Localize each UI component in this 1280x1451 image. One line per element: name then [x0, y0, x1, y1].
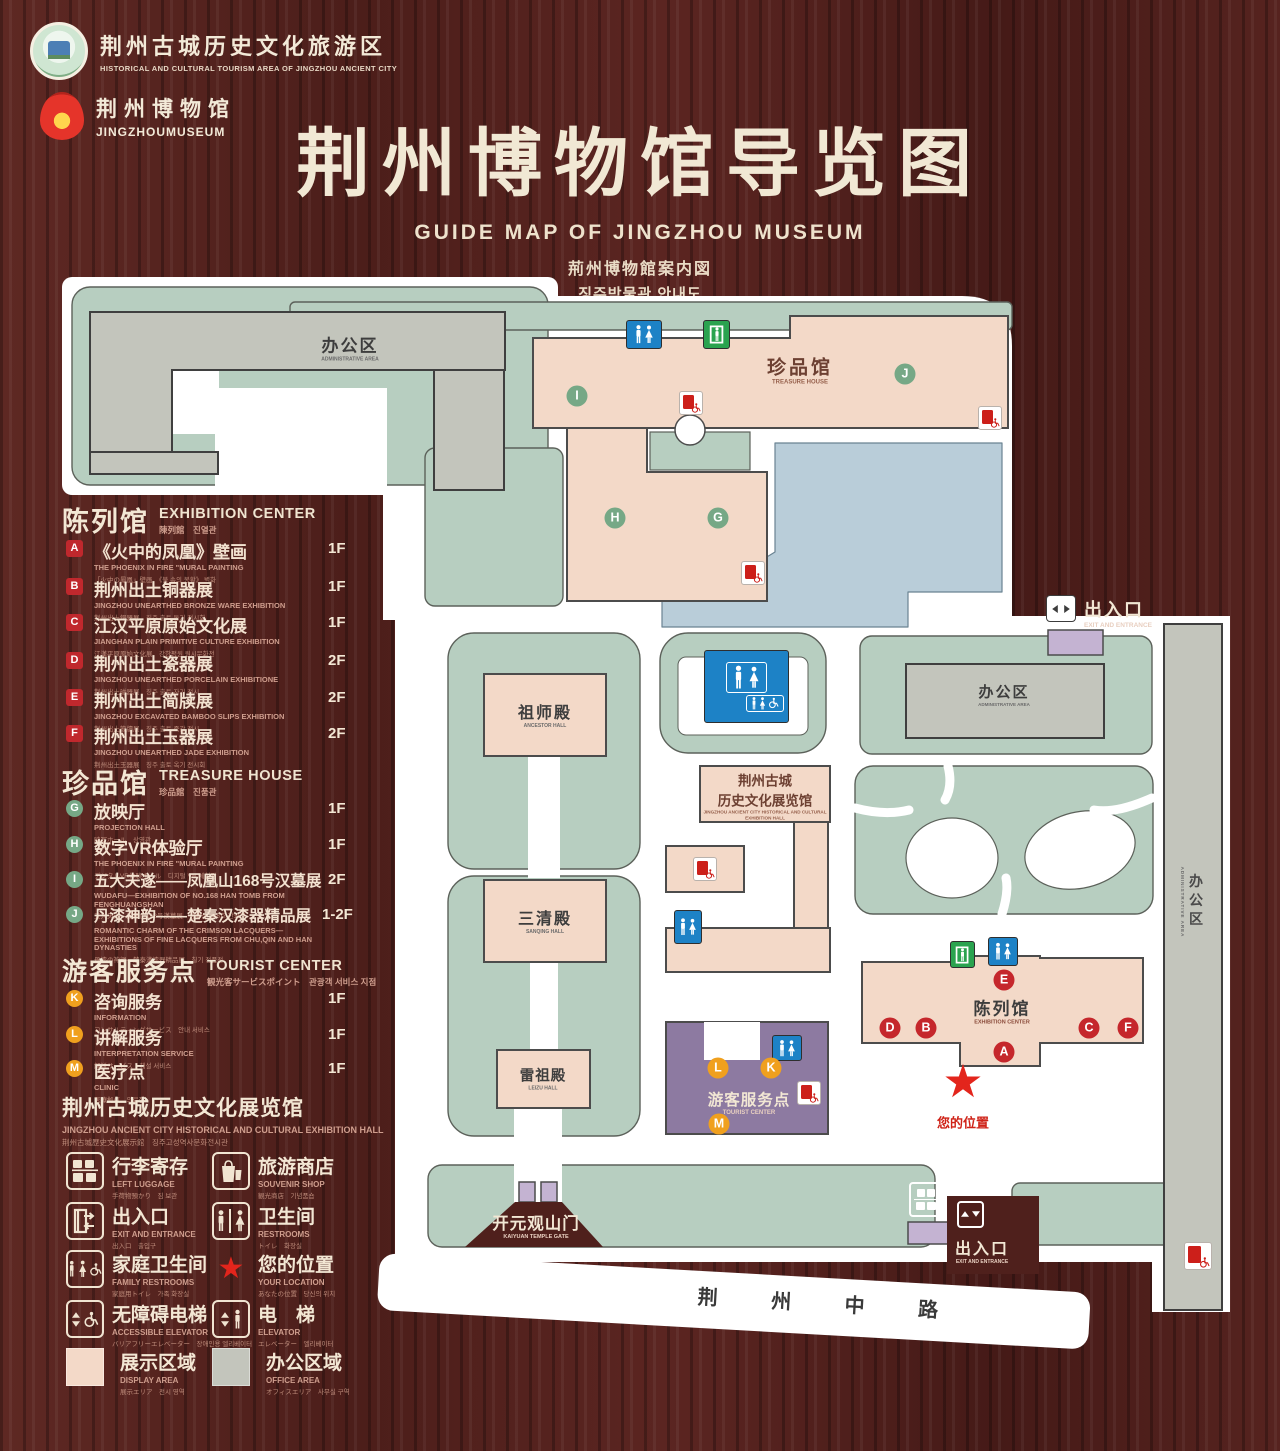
map-label-exhibition-hall: 荆州古城 历史文化展览馆 JINGZHOU ANCIENT CITY HISTO…: [700, 770, 830, 821]
map-badge-j: J: [895, 364, 916, 385]
map-badge-h: H: [605, 508, 626, 529]
map-badge-m: M: [709, 1114, 730, 1135]
emergency-exit-icon: [950, 941, 975, 968]
map-label-sanqing-hall: 三清殿 SANQING HALL: [518, 905, 572, 935]
map-label-admin-e: 办公区 ADMINISTRATIVE AREA: [978, 681, 1030, 707]
restroom-icon: [988, 937, 1018, 966]
map-badge-g: G: [708, 508, 729, 529]
map-badge-e: E: [994, 970, 1015, 991]
accessible-elevator-marker-icon: [1184, 1242, 1212, 1270]
map-badge-i: I: [567, 386, 588, 407]
restroom-icon: [674, 910, 702, 944]
map-label-tourist-center: 游客服务点 TOURIST CENTER: [708, 1088, 791, 1116]
map-badge-l: L: [708, 1058, 729, 1079]
map-label-ancestor-hall: 祖师殿 ANCESTOR HALL: [518, 699, 572, 729]
map-label-your-location: 您的位置: [937, 1113, 989, 1132]
map-badge-c: C: [1079, 1018, 1100, 1039]
map-badge-d: D: [880, 1018, 901, 1039]
accessible-elevator-marker-icon: [978, 406, 1002, 430]
accessible-elevator-marker-icon: [693, 857, 717, 881]
map-label-treasure-house: 珍品馆 TREASURE HOUSE: [767, 353, 833, 386]
exit-entrance-icon: [957, 1201, 984, 1228]
map-badge-k: K: [761, 1058, 782, 1079]
map-label-leizu-hall: 雷祖殿 LEIZU HALL: [520, 1065, 567, 1092]
map-badge-f: F: [1118, 1018, 1139, 1039]
accessible-elevator-marker-icon: [797, 1081, 821, 1105]
map-label-exit-south: 出入口 EXIT AND ENTRANCE: [955, 1235, 1009, 1265]
your-location-star-icon: ★: [942, 1058, 983, 1104]
accessible-elevator-marker-icon: [679, 391, 703, 415]
restroom-family-icon: [704, 650, 789, 723]
map-label-admin-strip: ADMINISTRATIVE AREA 办公区: [1180, 867, 1206, 938]
museum-map-canvas: [0, 0, 1280, 1451]
map-badge-a: A: [994, 1042, 1015, 1063]
map-badge-b: B: [916, 1018, 937, 1039]
restroom-icon: [626, 320, 662, 349]
emergency-exit-icon: [703, 320, 730, 349]
guide-map-poster: { "header": { "site_logo": {"zh": "荆州古城历…: [0, 0, 1280, 1451]
restroom-icon: [772, 1035, 802, 1061]
exit-entrance-icon: [1046, 595, 1076, 622]
map-label-exhibition-center: 陈列馆 EXHIBITION CENTER: [974, 995, 1031, 1026]
map-label-gate: 开元观山门 KAIYUAN TEMPLE GATE: [492, 1210, 580, 1240]
left-luggage-icon: [909, 1182, 943, 1217]
accessible-elevator-marker-icon: [741, 561, 765, 585]
map-label-admin-nw: 办公区 ADMINISTRATIVE AREA: [321, 332, 379, 363]
map-label-exit-east: 出入口 EXIT AND ENTRANCE: [1084, 596, 1152, 629]
